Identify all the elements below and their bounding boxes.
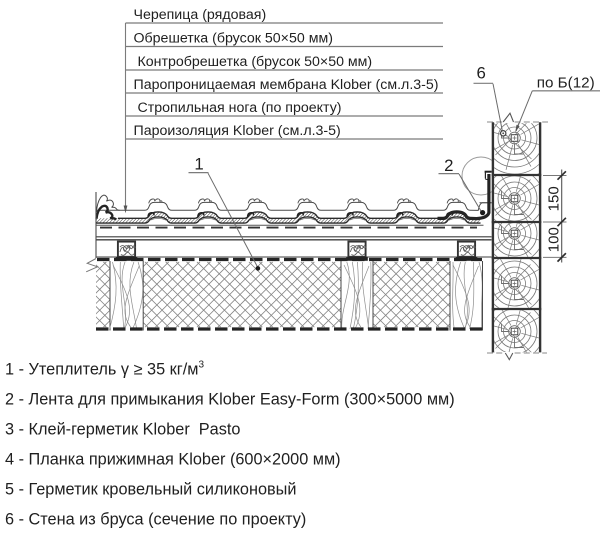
- svg-text:по Б(12): по Б(12): [537, 75, 595, 92]
- svg-text:Пароизоляция Klober (см.л.3-5): Пароизоляция Klober (см.л.3-5): [134, 123, 341, 139]
- svg-text:3 - Клей-герметик Klober Past: 3 - Клей-герметик Klober Pasto: [5, 420, 240, 438]
- svg-text:Стропильная нога (по проекту): Стропильная нога (по проекту): [138, 100, 342, 116]
- svg-text:1: 1: [194, 154, 203, 173]
- svg-text:4 - Планка прижимная Klober (6: 4 - Планка прижимная Klober (600×2000 мм…: [5, 450, 341, 468]
- svg-text:6 - Стена из бруса (сечение по: 6 - Стена из бруса (сечение по проекту): [5, 510, 306, 528]
- svg-text:Паропроницаемая мембрана Klobe: Паропроницаемая мембрана Klober (см.л.3-…: [134, 77, 439, 93]
- svg-text:150: 150: [546, 186, 563, 211]
- svg-text:Обрешетка (брусок 50×50 мм): Обрешетка (брусок 50×50 мм): [134, 30, 333, 46]
- svg-text:1 - Утеплитель γ ≥ 35 кг/м3: 1 - Утеплитель γ ≥ 35 кг/м3: [5, 359, 204, 378]
- svg-text:Черепица (рядовая): Черепица (рядовая): [134, 7, 267, 23]
- svg-text:5 - Герметик кровельный силико: 5 - Герметик кровельный силиконовый: [5, 480, 296, 498]
- svg-text:6: 6: [477, 64, 486, 83]
- svg-text:Контробрешетка (брусок 50×50 м: Контробрешетка (брусок 50×50 мм): [138, 54, 373, 70]
- svg-text:100: 100: [546, 227, 563, 252]
- svg-text:2: 2: [444, 156, 453, 175]
- svg-text:2 - Лента для примыкания Klobe: 2 - Лента для примыкания Klober Easy-For…: [5, 390, 455, 408]
